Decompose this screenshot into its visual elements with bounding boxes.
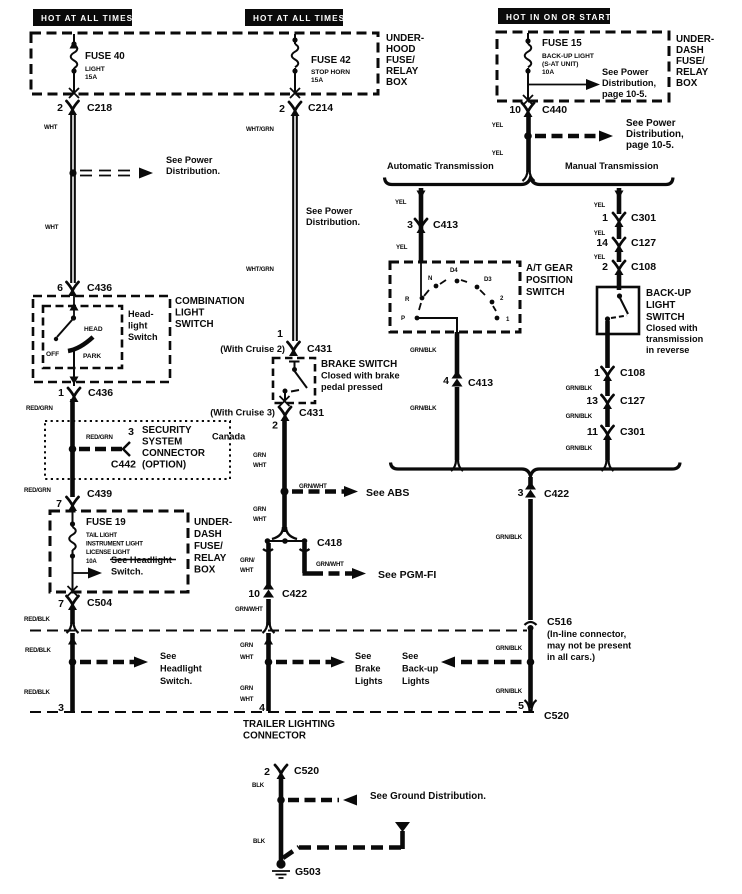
svg-text:Headlight: Headlight — [160, 664, 202, 674]
svg-text:TAIL LIGHT: TAIL LIGHT — [86, 532, 117, 539]
svg-text:C436: C436 — [87, 282, 112, 294]
svg-text:GRN: GRN — [253, 506, 266, 513]
svg-text:SWITCH: SWITCH — [646, 312, 685, 323]
svg-text:YEL: YEL — [492, 122, 504, 129]
svg-text:WHT: WHT — [44, 124, 58, 131]
svg-text:POSITION: POSITION — [526, 275, 573, 286]
svg-text:Lights: Lights — [355, 676, 383, 686]
svg-text:Manual Transmission: Manual Transmission — [565, 161, 659, 171]
svg-text:2: 2 — [264, 766, 270, 778]
svg-text:C516: C516 — [547, 616, 572, 628]
svg-text:4: 4 — [259, 702, 265, 714]
svg-text:3: 3 — [518, 487, 524, 499]
svg-text:(OPTION): (OPTION) — [142, 460, 186, 471]
svg-text:HOT IN ON OR START: HOT IN ON OR START — [506, 13, 612, 22]
svg-text:FUSE 42: FUSE 42 — [311, 55, 351, 66]
svg-text:C439: C439 — [87, 488, 112, 500]
svg-text:light: light — [128, 321, 147, 331]
svg-text:GRN: GRN — [240, 642, 253, 649]
svg-text:BACK-UP LIGHT: BACK-UP LIGHT — [542, 53, 594, 60]
svg-text:LIGHT: LIGHT — [85, 66, 105, 73]
svg-text:P: P — [401, 315, 405, 322]
svg-text:BRAKE SWITCH: BRAKE SWITCH — [321, 359, 397, 370]
svg-text:WHT/GRN: WHT/GRN — [246, 266, 274, 273]
svg-text:CONNECTOR: CONNECTOR — [142, 448, 205, 459]
svg-text:C413: C413 — [468, 377, 493, 389]
svg-text:LIGHT: LIGHT — [175, 308, 204, 319]
svg-text:Switch.: Switch. — [111, 567, 143, 577]
svg-text:BLK: BLK — [252, 782, 265, 789]
svg-text:DASH: DASH — [676, 45, 704, 56]
svg-text:HOT AT ALL TIMES: HOT AT ALL TIMES — [253, 14, 345, 23]
svg-text:GRN/BLK: GRN/BLK — [410, 405, 437, 412]
svg-text:LIGHT: LIGHT — [646, 300, 675, 311]
svg-text:UNDER-: UNDER- — [676, 34, 714, 45]
svg-text:C301: C301 — [620, 426, 645, 438]
svg-text:14: 14 — [596, 237, 608, 249]
svg-text:See Power: See Power — [306, 206, 353, 216]
svg-text:FUSE/: FUSE/ — [194, 541, 223, 552]
svg-text:15A: 15A — [85, 74, 97, 81]
svg-text:N: N — [428, 275, 432, 282]
svg-text:WHT/GRN: WHT/GRN — [246, 126, 274, 133]
svg-text:GRN/WHT: GRN/WHT — [235, 606, 263, 613]
svg-text:6: 6 — [57, 282, 63, 294]
svg-text:Distribution,: Distribution, — [626, 129, 684, 140]
svg-text:Distribution,: Distribution, — [602, 78, 656, 88]
svg-text:4: 4 — [443, 375, 449, 387]
svg-text:C431: C431 — [299, 407, 324, 419]
svg-text:page 10-5.: page 10-5. — [626, 140, 674, 151]
svg-text:YEL: YEL — [594, 202, 606, 209]
svg-text:2: 2 — [57, 102, 63, 114]
svg-text:C422: C422 — [282, 588, 307, 600]
svg-text:BOX: BOX — [386, 77, 408, 88]
svg-text:UNDER-: UNDER- — [194, 517, 232, 528]
svg-text:RELAY: RELAY — [676, 67, 709, 78]
svg-text:WHT: WHT — [240, 654, 254, 661]
svg-text:Head-: Head- — [128, 309, 154, 319]
svg-text:FUSE 19: FUSE 19 — [86, 517, 126, 528]
svg-text:C108: C108 — [631, 261, 656, 273]
svg-text:C520: C520 — [544, 710, 569, 722]
svg-text:OFF: OFF — [46, 351, 59, 358]
svg-text:GRN/BLK: GRN/BLK — [496, 534, 523, 541]
svg-text:BOX: BOX — [194, 565, 216, 576]
svg-text:INSTRUMENT LIGHT: INSTRUMENT LIGHT — [86, 541, 143, 548]
svg-text:(S-AT UNIT): (S-AT UNIT) — [542, 61, 579, 68]
svg-text:C520: C520 — [294, 765, 319, 777]
svg-text:C214: C214 — [308, 102, 333, 114]
svg-text:WHT: WHT — [253, 516, 267, 523]
svg-text:STOP HORN: STOP HORN — [311, 69, 350, 76]
svg-text:See Power: See Power — [626, 118, 676, 129]
svg-text:2: 2 — [602, 261, 608, 273]
svg-text:2: 2 — [272, 420, 278, 432]
svg-text:CONNECTOR: CONNECTOR — [243, 731, 306, 742]
svg-text:(With Cruise 3): (With Cruise 3) — [210, 408, 275, 418]
svg-text:may not be present: may not be present — [547, 641, 631, 651]
svg-text:C442: C442 — [111, 459, 136, 471]
svg-text:BOX: BOX — [676, 78, 698, 89]
svg-text:BLK: BLK — [253, 838, 266, 845]
svg-text:G503: G503 — [295, 866, 321, 878]
svg-text:10A: 10A — [542, 69, 554, 76]
svg-text:GRN/BLK: GRN/BLK — [566, 413, 593, 420]
svg-text:Distribution.: Distribution. — [166, 166, 220, 176]
svg-text:Switch.: Switch. — [160, 676, 192, 686]
svg-text:(In-line connector,: (In-line connector, — [547, 629, 626, 639]
svg-text:Distribution.: Distribution. — [306, 217, 360, 227]
svg-text:SECURITY: SECURITY — [142, 425, 192, 436]
svg-text:transmission: transmission — [646, 334, 704, 344]
svg-text:10: 10 — [509, 104, 521, 116]
svg-text:See ABS: See ABS — [366, 487, 409, 499]
svg-text:WHT: WHT — [45, 224, 59, 231]
svg-text:C218: C218 — [87, 102, 112, 114]
svg-text:BACK-UP: BACK-UP — [646, 288, 692, 299]
svg-text:7: 7 — [58, 598, 64, 610]
svg-text:GRN/: GRN/ — [240, 557, 255, 564]
svg-text:See PGM-FI: See PGM-FI — [378, 569, 436, 581]
svg-text:C436: C436 — [88, 387, 113, 399]
svg-text:Canada: Canada — [212, 432, 246, 442]
svg-text:COMBINATION: COMBINATION — [175, 296, 244, 307]
svg-text:FUSE 40: FUSE 40 — [85, 51, 125, 62]
svg-text:See Power: See Power — [602, 67, 649, 77]
svg-text:SWITCH: SWITCH — [175, 319, 214, 330]
svg-text:FUSE/: FUSE/ — [676, 56, 705, 67]
svg-text:YEL: YEL — [395, 199, 407, 206]
svg-text:D3: D3 — [484, 276, 492, 283]
svg-text:15A: 15A — [311, 77, 323, 84]
svg-text:GRN/BLK: GRN/BLK — [496, 645, 523, 652]
svg-text:WHT: WHT — [253, 462, 267, 469]
svg-text:10A: 10A — [86, 558, 97, 565]
svg-text:See Ground Distribution.: See Ground Distribution. — [370, 791, 486, 802]
svg-text:R: R — [405, 296, 410, 303]
svg-text:C127: C127 — [620, 395, 645, 407]
svg-text:See Power: See Power — [166, 155, 213, 165]
svg-text:DASH: DASH — [194, 529, 222, 540]
svg-text:YEL: YEL — [594, 254, 606, 261]
svg-text:C301: C301 — [631, 212, 656, 224]
svg-text:Lights: Lights — [402, 676, 430, 686]
svg-text:See: See — [355, 651, 371, 661]
svg-text:Back-up: Back-up — [402, 664, 439, 674]
svg-text:WHT: WHT — [240, 696, 254, 703]
svg-text:D4: D4 — [450, 267, 458, 274]
svg-text:A/T GEAR: A/T GEAR — [526, 263, 573, 274]
svg-text:See: See — [160, 651, 176, 661]
svg-text:1: 1 — [506, 316, 510, 323]
svg-text:TRAILER LIGHTING: TRAILER LIGHTING — [243, 719, 335, 730]
svg-text:SWITCH: SWITCH — [526, 287, 565, 298]
svg-text:5: 5 — [518, 700, 524, 712]
svg-text:C418: C418 — [317, 537, 342, 549]
svg-text:Closed with: Closed with — [646, 323, 698, 333]
svg-text:C127: C127 — [631, 237, 656, 249]
svg-text:C431: C431 — [307, 343, 332, 355]
svg-text:C440: C440 — [542, 104, 567, 116]
svg-text:GRN/BLK: GRN/BLK — [410, 347, 437, 354]
svg-text:FUSE/: FUSE/ — [386, 55, 415, 66]
svg-text:GRN/BLK: GRN/BLK — [566, 385, 593, 392]
svg-text:GRN/BLK: GRN/BLK — [496, 688, 523, 695]
svg-text:1: 1 — [277, 328, 283, 340]
svg-text:RED/BLK: RED/BLK — [25, 647, 51, 654]
svg-text:SYSTEM: SYSTEM — [142, 437, 182, 448]
svg-text:HEAD: HEAD — [84, 326, 103, 333]
svg-text:YEL: YEL — [594, 230, 606, 237]
svg-text:GRN/WHT: GRN/WHT — [316, 561, 344, 568]
svg-text:GRN: GRN — [253, 452, 266, 459]
svg-text:GRN: GRN — [240, 685, 253, 692]
svg-text:3: 3 — [58, 702, 64, 714]
svg-text:See: See — [402, 651, 418, 661]
svg-text:Switch: Switch — [128, 332, 158, 342]
svg-text:WHT: WHT — [240, 567, 254, 574]
svg-text:YEL: YEL — [492, 150, 504, 157]
svg-text:in reverse: in reverse — [646, 345, 689, 355]
svg-text:FUSE 15: FUSE 15 — [542, 38, 582, 49]
svg-text:C504: C504 — [87, 597, 112, 609]
svg-text:C413: C413 — [433, 219, 458, 231]
svg-text:1: 1 — [602, 212, 608, 224]
svg-text:Closed with brake: Closed with brake — [321, 371, 400, 381]
svg-text:GRN/WHT: GRN/WHT — [299, 483, 327, 490]
svg-text:C422: C422 — [544, 488, 569, 500]
svg-text:RELAY: RELAY — [194, 553, 227, 564]
svg-text:3: 3 — [128, 426, 134, 438]
svg-text:10: 10 — [248, 588, 260, 600]
svg-text:YEL: YEL — [396, 244, 408, 251]
svg-text:RED/BLK: RED/BLK — [24, 616, 50, 623]
svg-text:HOOD: HOOD — [386, 44, 415, 55]
svg-text:Automatic Transmission: Automatic Transmission — [387, 161, 494, 171]
svg-text:page 10-5.: page 10-5. — [602, 89, 647, 99]
svg-text:1: 1 — [594, 367, 600, 379]
svg-text:(With Cruise 2): (With Cruise 2) — [220, 344, 285, 354]
svg-text:11: 11 — [587, 426, 598, 438]
svg-text:1: 1 — [58, 387, 64, 399]
svg-text:7: 7 — [56, 498, 62, 510]
svg-text:GRN/BLK: GRN/BLK — [566, 445, 593, 452]
svg-text:C108: C108 — [620, 367, 645, 379]
svg-text:13: 13 — [586, 395, 598, 407]
svg-text:RED/BLK: RED/BLK — [24, 689, 50, 696]
svg-text:pedal pressed: pedal pressed — [321, 382, 383, 392]
svg-text:PARK: PARK — [83, 353, 101, 360]
svg-text:RED/GRN: RED/GRN — [86, 434, 113, 441]
svg-text:RED/GRN: RED/GRN — [26, 405, 53, 412]
svg-text:RELAY: RELAY — [386, 66, 419, 77]
svg-text:RED/GRN: RED/GRN — [24, 487, 51, 494]
svg-text:in all cars.): in all cars.) — [547, 652, 595, 662]
svg-text:3: 3 — [407, 219, 413, 231]
svg-text:2: 2 — [500, 295, 504, 302]
svg-text:Brake: Brake — [355, 664, 381, 674]
svg-text:UNDER-: UNDER- — [386, 33, 424, 44]
svg-text:2: 2 — [279, 103, 285, 115]
svg-text:HOT AT ALL TIMES: HOT AT ALL TIMES — [41, 14, 133, 23]
